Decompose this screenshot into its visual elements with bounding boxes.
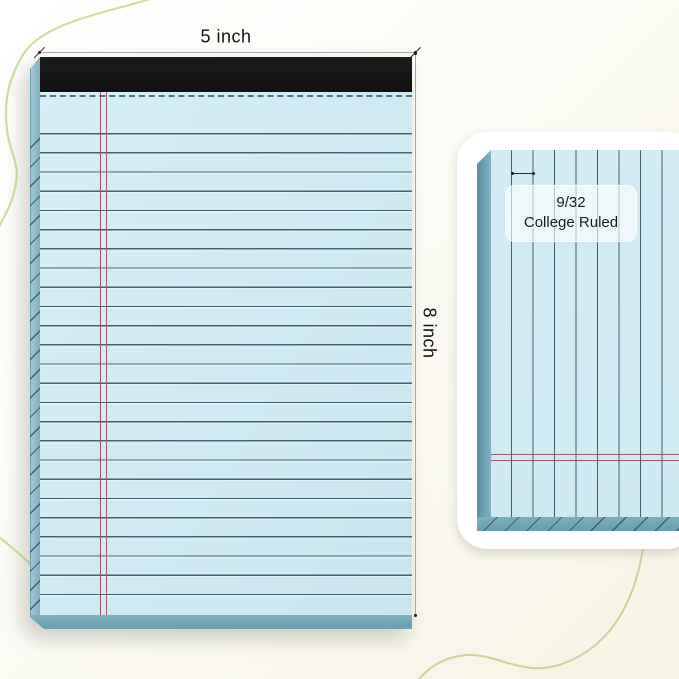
- dimension-endpoint-dot: [511, 172, 514, 175]
- ruled-lines: [40, 133, 412, 596]
- width-dimension-line: [39, 52, 416, 53]
- page-stack-hatch: [30, 130, 40, 617]
- pad-paper: [40, 57, 412, 615]
- detail-margin-line: [491, 460, 679, 461]
- height-dimension-label: 8 inch: [419, 307, 440, 358]
- detail-page-stack-hatch: [477, 517, 679, 531]
- product-diagram-page: { "annotations": { "width": { "label": "…: [0, 0, 679, 679]
- ruling-spec-name: College Ruled: [524, 213, 618, 233]
- pad-bottom-edge: [30, 615, 412, 629]
- detail-pad-bottom-edge: [477, 517, 679, 531]
- legal-pad: [30, 57, 412, 629]
- perforation-line: [40, 95, 412, 97]
- detail-pad-edge: [477, 150, 491, 531]
- height-dimension-line: [415, 53, 416, 616]
- dimension-endpoint-dot: [414, 52, 417, 55]
- ruling-spec-label: 9/32 College Ruled: [505, 185, 637, 242]
- dimension-endpoint-dot: [532, 172, 535, 175]
- margin-line-right: [106, 92, 107, 615]
- decorative-curve-bottom: [417, 542, 644, 679]
- ruling-detail-card: 9/32 College Ruled: [457, 132, 679, 549]
- width-dimension-label: 5 inch: [200, 27, 251, 48]
- ruling-spec-value: 9/32: [556, 193, 585, 213]
- margin-line-left: [100, 92, 101, 615]
- legal-pad-shape: [30, 57, 412, 629]
- dimension-endpoint-dot: [414, 614, 417, 617]
- detail-margin-line: [491, 454, 679, 455]
- ruling-spacing-marker: [512, 173, 534, 174]
- binding-strip: [40, 57, 412, 92]
